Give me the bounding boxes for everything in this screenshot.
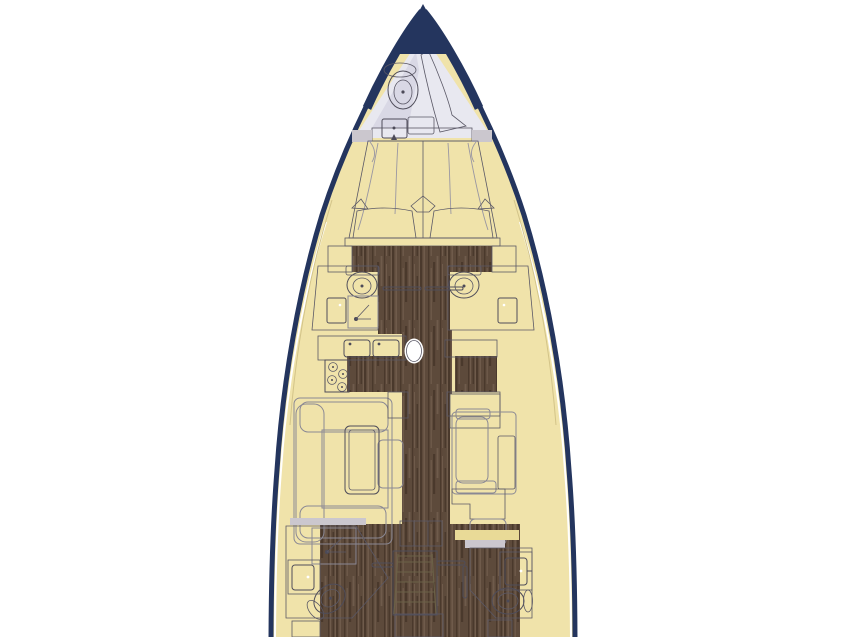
starboard-head-faucet bbox=[503, 304, 506, 307]
yacht-floorplan bbox=[0, 0, 850, 637]
aft-starboard-yellow-wall bbox=[455, 530, 519, 540]
aft-port-wall bbox=[290, 518, 366, 525]
threshold-right bbox=[472, 130, 492, 142]
floor-salon-corridor bbox=[402, 392, 450, 532]
aft-starboard-wall bbox=[465, 540, 505, 548]
threshold-left bbox=[352, 130, 372, 142]
floorplan-svg bbox=[0, 0, 850, 637]
floor-mid-corridor bbox=[378, 268, 450, 334]
mast bbox=[405, 339, 424, 364]
galley-counter-top bbox=[347, 356, 407, 392]
chart-counter-top bbox=[455, 356, 497, 392]
port-head-faucet bbox=[339, 304, 342, 307]
